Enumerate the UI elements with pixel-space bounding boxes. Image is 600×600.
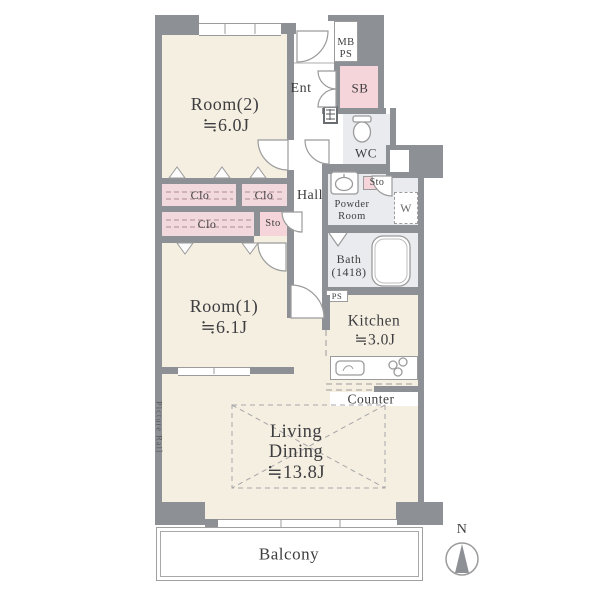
picture-rail-label: Picture Rail	[155, 401, 164, 453]
topright-notch	[390, 150, 409, 172]
wc-label: WC	[355, 147, 377, 160]
room2-label: Room(2)	[191, 95, 260, 113]
living-dining-size: ≒13.8J	[267, 464, 325, 483]
closet3-label: Clo	[198, 218, 217, 230]
hall-label: Hall	[297, 189, 323, 203]
wall-mbps-block	[358, 15, 384, 62]
kitchen-label: Kitchen	[348, 313, 401, 329]
closet2-label: Clo	[255, 189, 274, 201]
bath-label: Bath	[337, 253, 362, 265]
powder-room-label-1: Powder	[334, 200, 369, 211]
mb-label: MB	[337, 38, 354, 49]
powder-room-label-2: Room	[338, 212, 366, 223]
room2-size: ≒6.0J	[202, 116, 249, 134]
dining-label: Dining	[269, 443, 323, 462]
meter-box	[323, 106, 338, 124]
storage2-label: Sto	[370, 178, 385, 188]
wall-hall-left-lower	[287, 170, 294, 318]
floorplan: Room(2) ≒6.0J Room(1) ≒6.1J Ent MB PS SB…	[0, 0, 600, 600]
ps-top-label: PS	[340, 50, 353, 61]
wall-kitchen-left	[322, 295, 330, 330]
shoebox-label: SB	[352, 82, 369, 95]
wall-right-main	[418, 174, 424, 504]
balcony-label: Balcony	[259, 546, 319, 563]
wall-room1-bottom-right	[250, 367, 294, 374]
compass-needle	[455, 544, 469, 573]
room1-doorway-floor	[254, 236, 287, 244]
wall-topleft-block	[155, 15, 199, 35]
kitchen-counter-band	[330, 356, 418, 380]
ps-small-label: PS	[332, 292, 342, 301]
wall-room1-bottom-left	[162, 367, 178, 374]
room1-label: Room(1)	[190, 297, 259, 315]
living-label: Living	[270, 423, 322, 442]
wall-ld-bottom-strip	[205, 519, 219, 527]
room1-partition-window	[178, 367, 250, 376]
wall-closet-bottom	[162, 236, 254, 243]
closet1-label: Clo	[191, 189, 210, 201]
wall-bottomright-block	[396, 502, 443, 525]
bath-size-label: (1418)	[332, 266, 367, 278]
room2-window	[199, 23, 281, 36]
wall-sb-right	[378, 62, 384, 114]
storage1-label: Sto	[265, 219, 281, 230]
compass-circle	[446, 543, 478, 575]
washing-machine-label: W	[400, 202, 412, 214]
entrance-label: Ent	[291, 82, 312, 96]
north-label: N	[457, 523, 468, 537]
kitchen-size: ≒3.0J	[355, 332, 396, 348]
wall-bottomleft-block	[155, 502, 205, 525]
room1-size: ≒6.1J	[200, 318, 247, 336]
wall-powder-bath	[322, 225, 418, 233]
counter-label: Counter	[348, 392, 395, 406]
